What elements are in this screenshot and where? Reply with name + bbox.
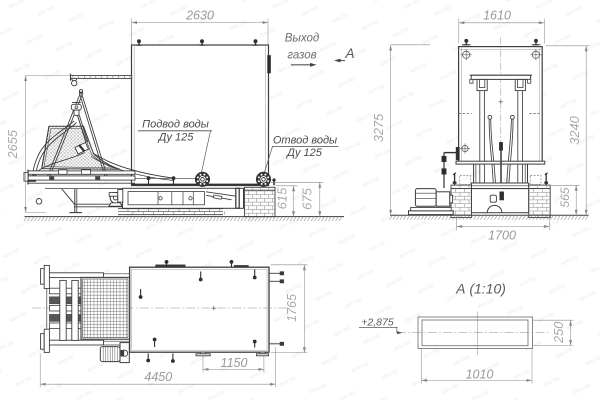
svg-text:Отвод воды: Отвод воды [273,134,337,146]
svg-text:2655: 2655 [5,129,20,159]
svg-text:615: 615 [274,187,289,209]
svg-text:1150: 1150 [221,356,248,370]
svg-text:1765: 1765 [285,294,299,322]
svg-text:+2,875: +2,875 [361,316,394,328]
svg-text:Подвод воды: Подвод воды [142,119,209,131]
svg-text:А (1:10): А (1:10) [455,281,506,297]
svg-text:Ду 125: Ду 125 [285,147,323,159]
svg-text:2630: 2630 [185,8,214,22]
svg-text:1700: 1700 [488,229,516,243]
svg-text:565: 565 [558,187,572,208]
svg-text:Выход: Выход [285,33,320,45]
svg-text:3275: 3275 [371,113,386,142]
svg-text:675: 675 [300,187,315,209]
svg-text:А: А [344,46,354,61]
svg-text:1010: 1010 [466,368,494,382]
svg-text:250: 250 [551,321,566,344]
svg-text:4450: 4450 [144,370,172,384]
svg-text:газов: газов [287,50,316,62]
svg-text:1610: 1610 [483,9,511,23]
svg-text:3240: 3240 [567,115,582,144]
svg-text:Ду 125: Ду 125 [157,132,195,144]
